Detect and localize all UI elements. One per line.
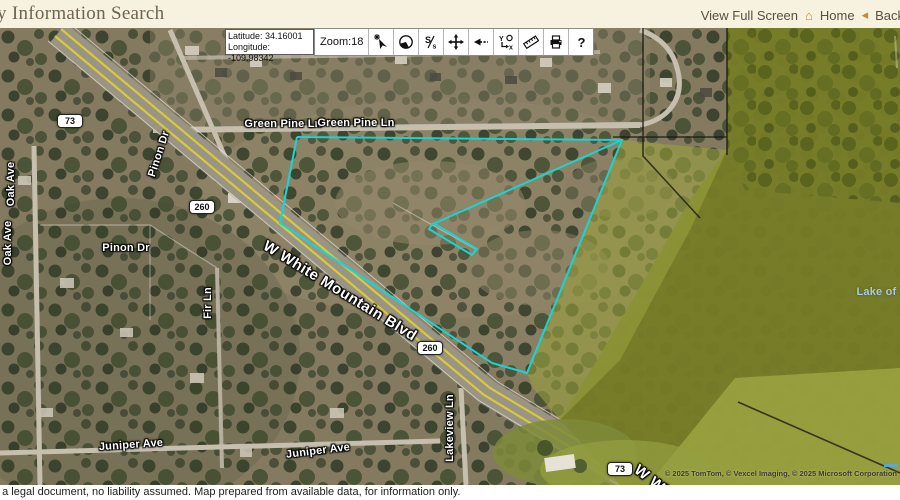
home-icon: ⌂	[805, 8, 813, 23]
scale-button[interactable]: Ss	[418, 29, 443, 55]
route-shield-route-73-north: 73	[57, 114, 83, 128]
overview-map-button[interactable]	[393, 29, 418, 55]
pan-icon	[448, 34, 464, 50]
satellite-basemap	[0, 28, 900, 485]
measure-button[interactable]	[518, 29, 543, 55]
header-links: View Full Screen ⌂ Home ◂ Back	[701, 7, 900, 23]
previous-extent-icon	[473, 34, 489, 50]
header-bar: y Information Search View Full Screen ⌂ …	[0, 0, 900, 28]
previous-extent-button[interactable]	[468, 29, 493, 55]
identify-pointer-icon	[373, 34, 389, 50]
route-shield-route-260-south: 260	[417, 341, 443, 355]
coordinates-readout: Latitude: 34.16001 Longitude: -109.98342	[225, 29, 314, 55]
footer-bar: t a legal document, no liability assumed…	[0, 485, 900, 500]
back-arrow-icon: ◂	[862, 7, 869, 23]
disclaimer-text: t a legal document, no liability assumed…	[0, 486, 461, 498]
home-link[interactable]: Home	[820, 8, 855, 23]
help-button[interactable]: ?	[568, 29, 593, 55]
svg-text:x: x	[509, 45, 513, 51]
gis-application-window: y Information Search View Full Screen ⌂ …	[0, 0, 900, 500]
help-icon: ?	[573, 34, 589, 50]
route-shield-route-73-south: 73	[607, 462, 633, 476]
print-button[interactable]	[543, 29, 568, 55]
scale-icon: Ss	[423, 34, 439, 50]
map-viewport[interactable]: Latitude: 34.16001 Longitude: -109.98342…	[0, 28, 900, 485]
identify-pointer-button[interactable]	[368, 29, 393, 55]
measure-icon	[523, 34, 539, 50]
longitude-readout: Longitude: -109.98342	[228, 42, 311, 64]
map-toolbar: Zoom:18 SsYx?	[314, 28, 594, 56]
svg-text:?: ?	[578, 35, 586, 50]
coordinates-icon: Yx	[498, 34, 514, 50]
pan-button[interactable]	[443, 29, 468, 55]
back-link[interactable]: Back	[875, 8, 900, 23]
print-icon	[548, 34, 564, 50]
overview-map-icon	[398, 34, 414, 50]
map-copyright: © 2025 TomTom, © Vexcel Imaging, © 2025 …	[665, 469, 897, 478]
latitude-readout: Latitude: 34.16001	[228, 31, 311, 42]
view-full-screen-link[interactable]: View Full Screen	[701, 8, 798, 23]
svg-text:Y: Y	[499, 36, 504, 43]
svg-text:s: s	[433, 44, 437, 51]
coordinates-button[interactable]: Yx	[493, 29, 518, 55]
route-shield-route-260-west: 260	[189, 200, 215, 214]
page-title: y Information Search	[0, 3, 164, 25]
zoom-level-readout: Zoom:18	[315, 29, 368, 55]
